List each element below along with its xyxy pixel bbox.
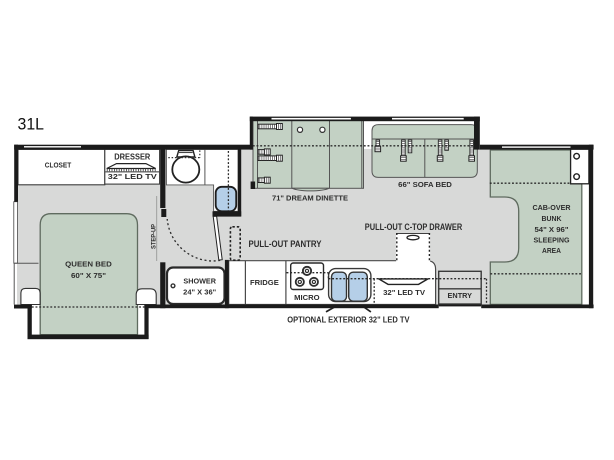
svg-text:OPTIONAL EXTERIOR 32" LED TV: OPTIONAL EXTERIOR 32" LED TV	[287, 314, 410, 324]
svg-text:AREA: AREA	[542, 248, 561, 255]
svg-text:PULL-OUT PANTRY: PULL-OUT PANTRY	[249, 239, 322, 249]
svg-text:60" X 75": 60" X 75"	[71, 273, 106, 280]
svg-text:STEP-UP: STEP-UP	[151, 223, 158, 249]
svg-text:PULL-OUT C-TOP DRAWER: PULL-OUT C-TOP DRAWER	[365, 222, 463, 232]
svg-text:ENTRY: ENTRY	[448, 293, 473, 300]
svg-text:DRESSER: DRESSER	[114, 153, 150, 162]
svg-text:54" X 96": 54" X 96"	[535, 227, 569, 234]
svg-text:24" X 36": 24" X 36"	[183, 290, 216, 297]
svg-text:66" SOFA BED: 66" SOFA BED	[398, 182, 452, 189]
svg-text:32" LED TV: 32" LED TV	[383, 288, 426, 297]
svg-text:SHOWER: SHOWER	[183, 279, 216, 286]
svg-text:31L: 31L	[18, 114, 45, 133]
svg-text:CAB-OVER: CAB-OVER	[533, 205, 571, 212]
svg-text:SLEEPING: SLEEPING	[534, 238, 570, 245]
svg-text:BUNK: BUNK	[542, 216, 562, 223]
svg-text:CLOSET: CLOSET	[45, 163, 72, 170]
svg-text:QUEEN BED: QUEEN BED	[65, 262, 112, 269]
svg-text:MICRO: MICRO	[294, 295, 320, 302]
svg-text:FRIDGE: FRIDGE	[250, 280, 279, 287]
svg-text:71" DREAM DINETTE: 71" DREAM DINETTE	[272, 195, 348, 202]
svg-text:32" LED TV: 32" LED TV	[108, 172, 157, 181]
